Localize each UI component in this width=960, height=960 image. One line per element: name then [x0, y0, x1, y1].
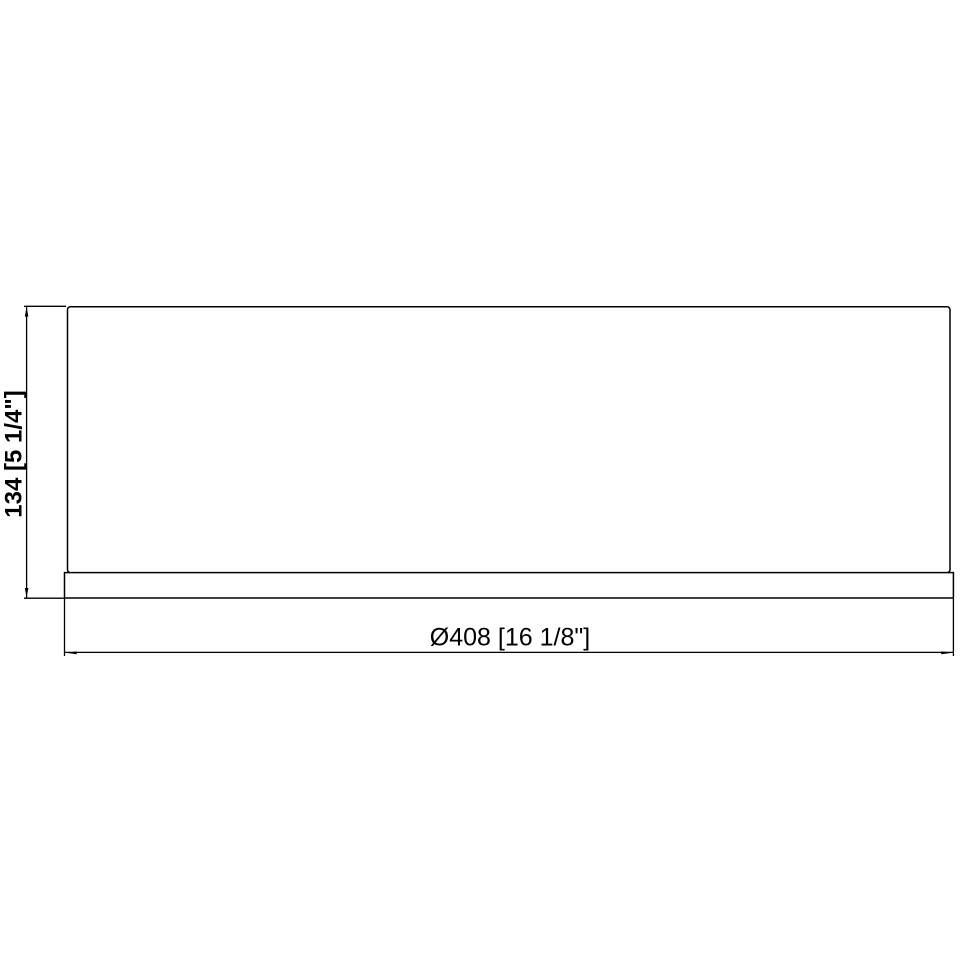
svg-text:134 [5 1/4"]: 134 [5 1/4"]: [1, 390, 28, 517]
svg-text:Ø408 [16 1/8"]: Ø408 [16 1/8"]: [430, 624, 590, 652]
